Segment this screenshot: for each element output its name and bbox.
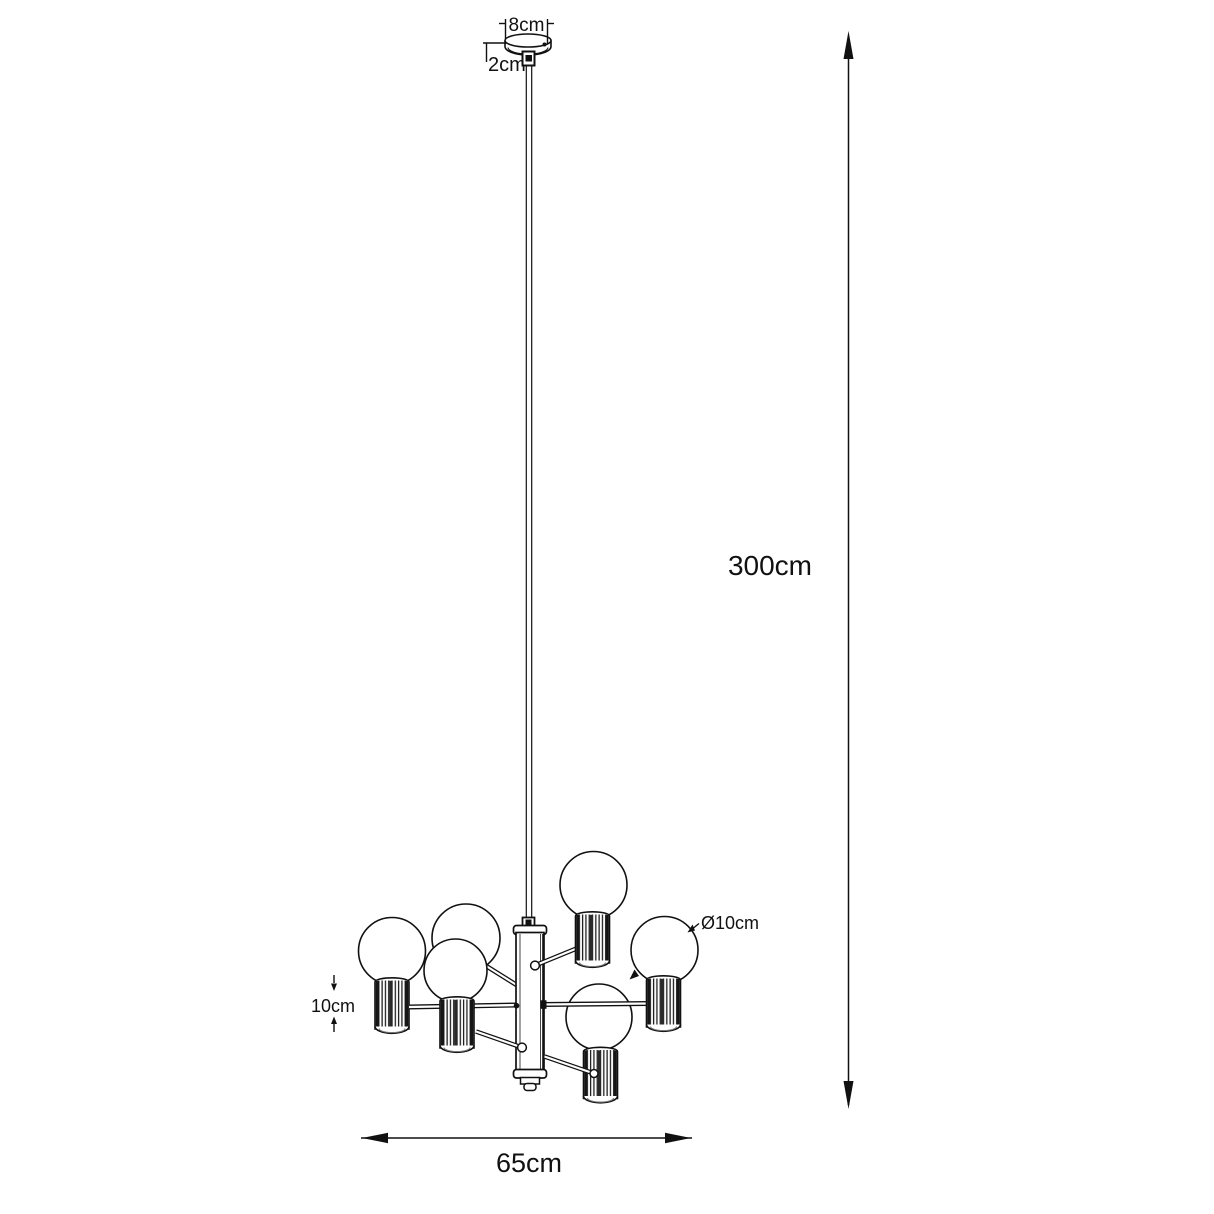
fixture-width-label: 65cm [496, 1148, 562, 1178]
arm-lower-left [476, 1032, 522, 1048]
dimension-socket-height: 10cm [311, 975, 355, 1032]
joint-lower-left-arm [518, 1043, 527, 1052]
socket-bottom [584, 1047, 618, 1103]
socket-top [576, 912, 610, 968]
arrow-down-small [331, 984, 337, 992]
arrow-right [665, 1133, 691, 1143]
column-bottom-cap [514, 1070, 547, 1079]
suspension-length-label: 300cm [728, 550, 812, 581]
arrow-up-small [331, 1017, 337, 1025]
canopy-width-label: 8cm [509, 15, 545, 36]
bulb-front-left [424, 939, 487, 1002]
canopy-height-label: 2cm [488, 54, 526, 76]
column-finial [524, 1084, 536, 1091]
canopy-screw [543, 43, 547, 47]
dimension-suspension-length: 300cm [728, 31, 854, 1109]
joint-lower-right-arm [590, 1070, 598, 1078]
arrow-up [844, 31, 854, 59]
technical-drawing-canvas: 8cm 2cm 300cm [0, 0, 1214, 1214]
dimension-fixture-width: 65cm [361, 1133, 692, 1178]
joint-left-arm [514, 1003, 520, 1009]
arm-rear-left [483, 964, 519, 987]
bulb-bottom [566, 984, 632, 1050]
bulb-right [631, 917, 698, 984]
socket-front-left [440, 997, 474, 1053]
suspension-rod [523, 52, 535, 919]
socket-far-left [375, 978, 409, 1034]
bulb-diameter-label: Ø10cm [701, 913, 759, 933]
socket-height-label: 10cm [311, 996, 355, 1016]
socket-right [647, 976, 681, 1032]
bulb-far-left [359, 918, 426, 985]
joint-top-arm [531, 961, 540, 970]
joint-right-arm [541, 1000, 547, 1009]
chandelier [359, 852, 699, 1103]
bulb-top [560, 852, 627, 919]
arrow-left [362, 1133, 388, 1143]
arrow-down [844, 1081, 854, 1109]
arm-right [541, 1004, 649, 1005]
chandelier-dimension-diagram: 8cm 2cm 300cm [0, 0, 1214, 1214]
